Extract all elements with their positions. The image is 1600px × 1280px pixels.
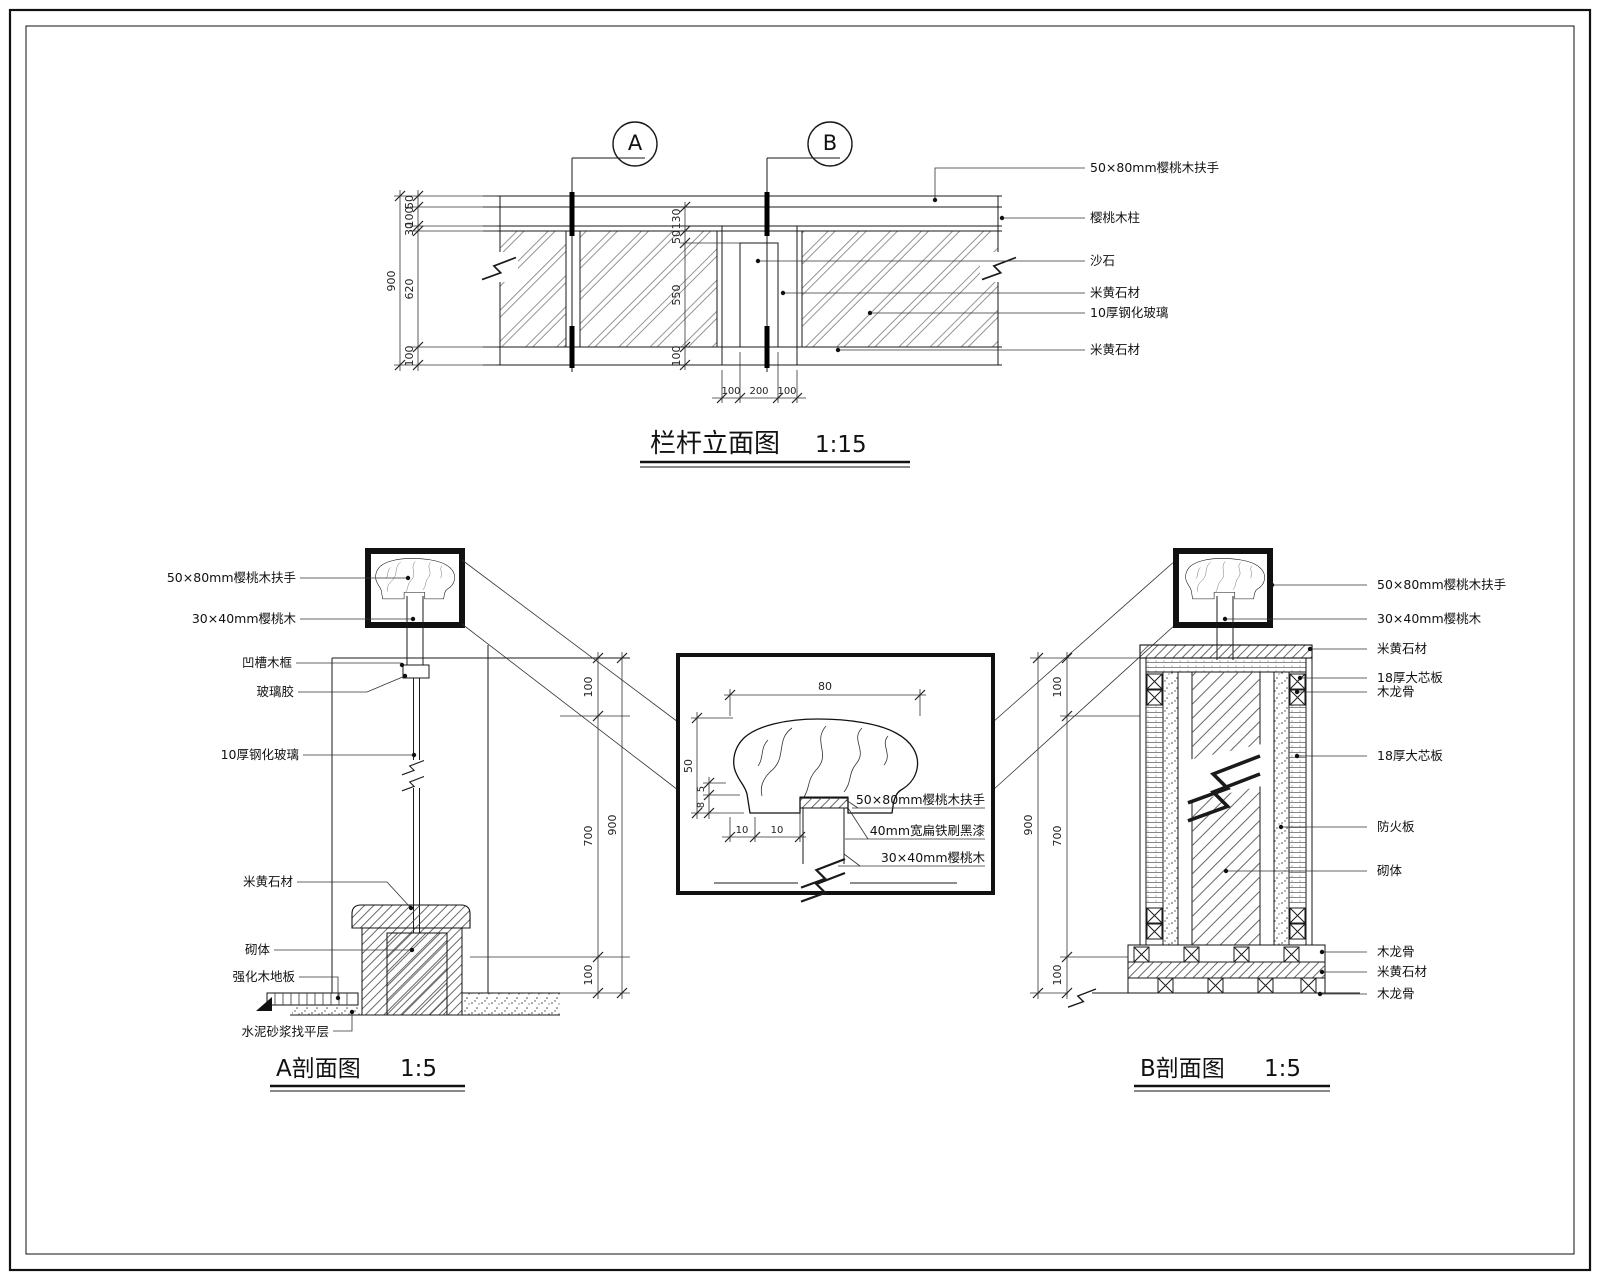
dim: 100 bbox=[1051, 677, 1064, 698]
material-label: 50×80mm樱桃木扶手 bbox=[856, 792, 985, 807]
material-label: 米黄石材 bbox=[1090, 285, 1140, 300]
railing-detail-drawing: A B 50×80mm樱桃木扶手 樱桃木柱 沙石 米黄石材 10厚钢化玻璃 米黄… bbox=[0, 0, 1600, 1280]
view-title: A剖面图 bbox=[276, 1056, 361, 1082]
material-label: 50×80mm樱桃木扶手 bbox=[1090, 160, 1219, 175]
dim: 5 bbox=[696, 786, 707, 792]
wood-keel bbox=[1147, 674, 1162, 689]
dim-total: 900 bbox=[606, 815, 619, 836]
glass-panel bbox=[580, 231, 717, 347]
view-scale: 1:5 bbox=[400, 1056, 437, 1082]
dim: 100 bbox=[777, 386, 796, 397]
material-label: 水泥砂浆找平层 bbox=[241, 1024, 329, 1039]
view-title: 栏杆立面图 bbox=[650, 429, 780, 459]
flat-iron bbox=[800, 797, 848, 808]
blockboard-band bbox=[1146, 704, 1163, 904]
dim: 10 bbox=[736, 825, 749, 836]
material-label: 玻璃胶 bbox=[256, 684, 294, 699]
material-label: 防火板 bbox=[1377, 819, 1415, 834]
material-label: 沙石 bbox=[1090, 253, 1115, 268]
material-label: 砌体 bbox=[245, 942, 271, 957]
material-label: 樱桃木柱 bbox=[1090, 210, 1140, 225]
material-label: 40mm宽扁铁刷黑漆 bbox=[870, 823, 985, 838]
glass-panel bbox=[802, 231, 998, 347]
dim: 50 bbox=[682, 759, 695, 773]
dim: 700 bbox=[582, 826, 595, 847]
dim: 100 bbox=[670, 346, 683, 367]
material-label: 30×40mm樱桃木 bbox=[1377, 611, 1482, 626]
dim: 100 bbox=[721, 386, 740, 397]
board-band bbox=[1163, 672, 1178, 945]
dim: 130 bbox=[670, 209, 683, 230]
view-scale: 1:5 bbox=[1264, 1056, 1301, 1082]
section-a-labels: 50×80mm樱桃木扶手 30×40mm樱桃木 凹槽木框 玻璃胶 10厚钢化玻璃… bbox=[167, 570, 329, 1039]
section-a-drawing: 100 700 100 900 50×80mm樱桃木扶手 30×40mm樱桃木 … bbox=[167, 551, 630, 1091]
material-label: 米黄石材 bbox=[1377, 964, 1427, 979]
material-label: 强化木地板 bbox=[232, 969, 295, 984]
wood-keel bbox=[1290, 924, 1305, 939]
section-a-title: A剖面图 1:5 bbox=[270, 1056, 465, 1091]
view-title: B剖面图 bbox=[1140, 1056, 1225, 1082]
dim: 80 bbox=[818, 680, 832, 693]
material-label: 米黄石材 bbox=[1090, 342, 1140, 357]
dim: 700 bbox=[1051, 826, 1064, 847]
material-label: 18厚大芯板 bbox=[1377, 670, 1443, 685]
dim: 50 bbox=[670, 230, 683, 244]
board-band bbox=[1274, 672, 1289, 945]
material-label: 30×40mm樱桃木 bbox=[881, 850, 986, 865]
material-label: 木龙骨 bbox=[1377, 986, 1415, 1001]
blockboard-band bbox=[1289, 704, 1306, 904]
wood-keel bbox=[1290, 908, 1305, 923]
dim: 8 bbox=[696, 802, 707, 808]
material-label: 30×40mm樱桃木 bbox=[192, 611, 297, 626]
dim: 10 bbox=[771, 825, 784, 836]
marker-b-letter: B bbox=[823, 131, 837, 155]
page-border bbox=[10, 10, 1590, 1270]
dim: 200 bbox=[749, 386, 768, 397]
elevation-title: 栏杆立面图 1:15 bbox=[640, 429, 910, 467]
dim: 620 bbox=[403, 279, 416, 300]
section-b-dims bbox=[1030, 652, 1140, 999]
break-symbol bbox=[1068, 989, 1096, 1007]
material-label: 米黄石材 bbox=[243, 874, 293, 889]
marker-a-letter: A bbox=[628, 131, 643, 155]
material-label: 砌体 bbox=[1377, 863, 1403, 878]
blockboard-layer bbox=[1146, 658, 1306, 672]
material-label: 10厚钢化玻璃 bbox=[221, 747, 299, 762]
material-label: 50×80mm樱桃木扶手 bbox=[1377, 577, 1506, 592]
wood-keel bbox=[1147, 690, 1162, 705]
material-label: 18厚大芯板 bbox=[1377, 748, 1443, 763]
view-scale: 1:15 bbox=[815, 432, 867, 458]
dim-total: 900 bbox=[385, 271, 398, 292]
section-b-title: B剖面图 1:5 bbox=[1134, 1056, 1330, 1091]
dim: 100 bbox=[582, 965, 595, 986]
material-label: 50×80mm樱桃木扶手 bbox=[167, 570, 296, 585]
material-label: 凹槽木框 bbox=[242, 655, 293, 670]
stone-cap bbox=[1140, 645, 1312, 658]
wood-keel bbox=[1147, 908, 1162, 923]
dim: 100 bbox=[1051, 965, 1064, 986]
dim: 100 bbox=[582, 677, 595, 698]
section-b-labels: 50×80mm樱桃木扶手 30×40mm樱桃木 米黄石材 18厚大芯板 木龙骨 … bbox=[1377, 577, 1506, 1001]
dim-total: 900 bbox=[1022, 815, 1035, 836]
glass-panel bbox=[500, 231, 566, 347]
elevation-drawing: A B 50×80mm樱桃木扶手 樱桃木柱 沙石 米黄石材 10厚钢化玻璃 米黄… bbox=[385, 122, 1219, 467]
material-label: 10厚钢化玻璃 bbox=[1090, 305, 1168, 320]
dim: 550 bbox=[670, 285, 683, 306]
material-label: 木龙骨 bbox=[1377, 684, 1415, 699]
handrail-detail-drawing: 80 50 5 8 10 10 50×80mm樱桃木扶手 40mm宽扁铁刷黑漆 … bbox=[462, 560, 1176, 902]
wood-keel bbox=[1290, 674, 1305, 689]
dim: 100 bbox=[403, 346, 416, 367]
wood-keel bbox=[1147, 924, 1162, 939]
column-footing bbox=[1128, 945, 1325, 993]
elevation-labels: 50×80mm樱桃木扶手 樱桃木柱 沙石 米黄石材 10厚钢化玻璃 米黄石材 bbox=[1090, 160, 1219, 357]
dim: 30 bbox=[403, 222, 416, 236]
material-label: 米黄石材 bbox=[1377, 641, 1427, 656]
material-label: 木龙骨 bbox=[1377, 944, 1415, 959]
masonry-core bbox=[387, 933, 447, 1015]
cad-sheet: A B 50×80mm樱桃木扶手 樱桃木柱 沙石 米黄石材 10厚钢化玻璃 米黄… bbox=[0, 0, 1600, 1280]
